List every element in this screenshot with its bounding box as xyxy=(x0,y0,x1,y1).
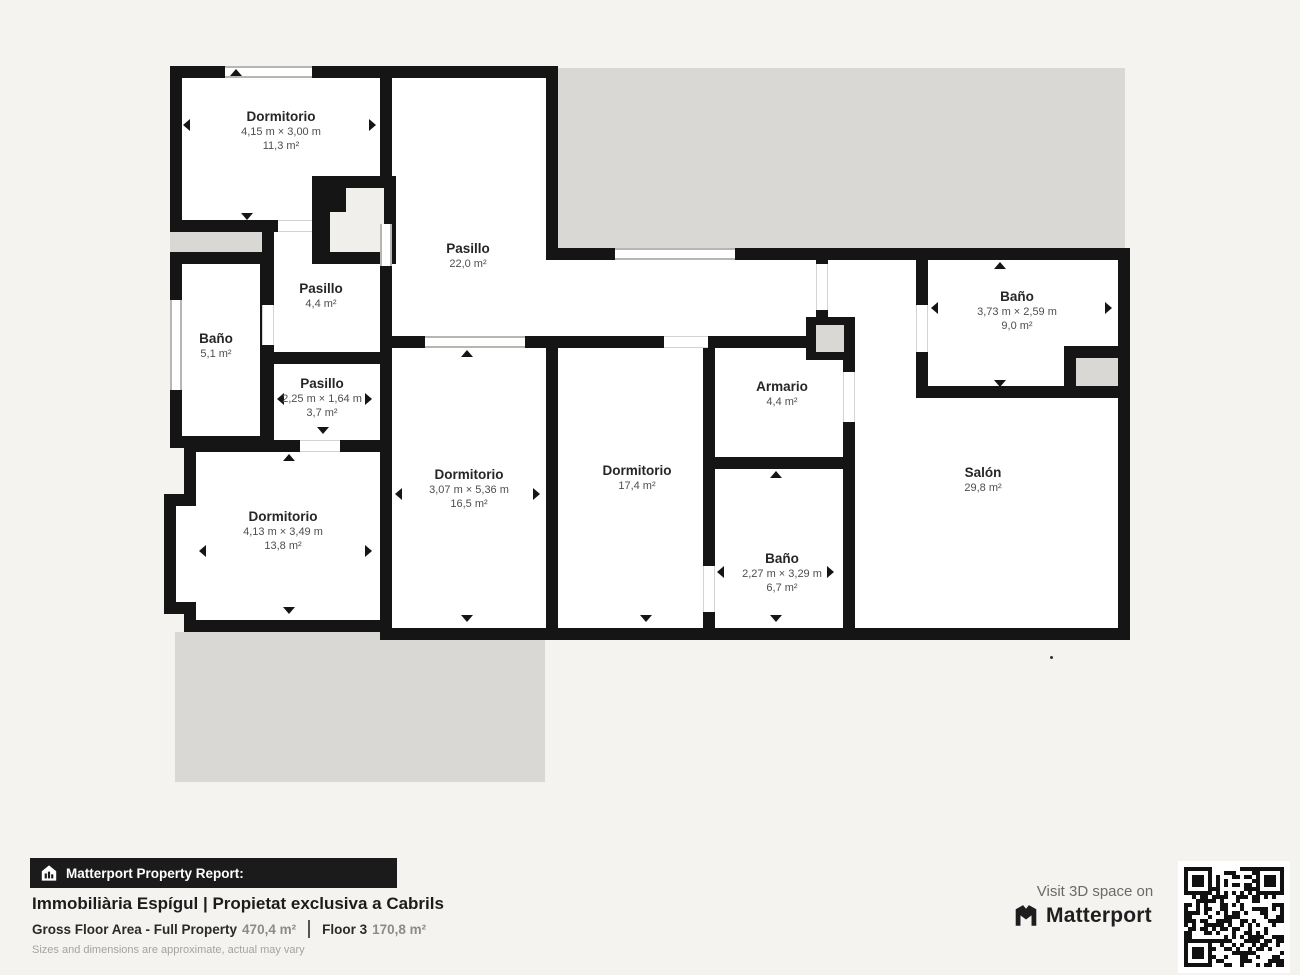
room-label-dormitorio-sw: Dormitorio 4,13 m × 3,49 m 13,8 m² xyxy=(243,508,323,553)
room-label-bano-centro: Baño 2,27 m × 3,29 m 6,7 m² xyxy=(742,550,822,595)
room-label-dormitorio-nw: Dormitorio 4,15 m × 3,00 m 11,3 m² xyxy=(241,108,321,153)
room-label-bano-ne: Baño 3,73 m × 2,59 m 9,0 m² xyxy=(977,288,1057,333)
stairs-landing xyxy=(330,212,384,252)
room-label-bano-oeste: Baño 5,1 m² xyxy=(199,330,233,361)
room-dimensions: 2,27 m × 3,29 m xyxy=(742,567,822,581)
gross-floor-area-value: 470,4 m² xyxy=(242,922,296,937)
gross-floor-area-label: Gross Floor Area - Full Property xyxy=(32,922,237,937)
room-dimensions: 2,25 m × 1,64 m xyxy=(282,392,362,406)
room-name: Dormitorio xyxy=(603,462,672,479)
room-area: 17,4 m² xyxy=(603,479,672,493)
measure-arrow xyxy=(640,615,652,622)
disclaimer: Sizes and dimensions are approximate, ac… xyxy=(32,944,305,956)
measure-arrow xyxy=(317,356,329,363)
room-label-salon: Salón 29,8 m² xyxy=(964,464,1001,495)
measure-arrow xyxy=(183,119,190,131)
property-title: Immobiliària Espígul | Propietat exclusi… xyxy=(32,894,444,914)
measure-arrow xyxy=(994,380,1006,387)
room-area: 6,7 m² xyxy=(742,581,822,595)
room-area: 29,8 m² xyxy=(964,481,1001,495)
room-name: Dormitorio xyxy=(243,508,323,525)
measure-arrow xyxy=(283,454,295,461)
room-pasillo-grande xyxy=(380,66,558,348)
door-opening xyxy=(816,264,828,310)
room-area: 4,4 m² xyxy=(756,395,808,409)
room-name: Baño xyxy=(977,288,1057,305)
measure-arrow xyxy=(533,488,540,500)
room-area: 5,1 m² xyxy=(199,347,233,361)
room-bano-centro xyxy=(703,457,855,640)
measure-arrow xyxy=(369,119,376,131)
room-label-dormitorio-este: Dormitorio 17,4 m² xyxy=(603,462,672,493)
door-opening xyxy=(703,566,715,612)
terrace-area xyxy=(175,632,545,782)
window xyxy=(425,336,525,348)
window xyxy=(615,248,735,260)
measure-arrow xyxy=(827,566,834,578)
room-area: 3,7 m² xyxy=(282,406,362,420)
room-label-armario: Armario 4,4 m² xyxy=(756,378,808,409)
void-area xyxy=(816,325,844,352)
room-dimensions: 4,15 m × 3,00 m xyxy=(241,125,321,139)
measure-arrow xyxy=(230,69,242,76)
floor-value: 170,8 m² xyxy=(372,922,426,937)
measure-arrow xyxy=(199,545,206,557)
measure-arrow xyxy=(994,262,1006,269)
room-area: 9,0 m² xyxy=(977,319,1057,333)
separator xyxy=(308,920,310,938)
room-name: Pasillo xyxy=(282,375,362,392)
room-dimensions: 3,73 m × 2,59 m xyxy=(977,305,1057,319)
room-dimensions: 4,13 m × 3,49 m xyxy=(243,525,323,539)
room-label-pasillo-medio: Pasillo 4,4 m² xyxy=(299,280,343,311)
room-name: Dormitorio xyxy=(241,108,321,125)
floor-area-line: Gross Floor Area - Full Property 470,4 m… xyxy=(32,920,426,938)
measure-arrow xyxy=(461,615,473,622)
door-opening xyxy=(916,305,928,352)
measure-arrow xyxy=(241,213,253,220)
room-name: Pasillo xyxy=(299,280,343,297)
measure-arrow xyxy=(770,615,782,622)
void-area xyxy=(1076,358,1118,386)
room-area: 4,4 m² xyxy=(299,297,343,311)
room-name: Baño xyxy=(199,330,233,347)
measure-arrow xyxy=(317,427,329,434)
camera-dot xyxy=(1050,656,1053,659)
wall xyxy=(828,628,1130,640)
room-dimensions: 3,07 m × 5,36 m xyxy=(429,483,509,497)
qr-code[interactable] xyxy=(1178,861,1290,973)
measure-arrow xyxy=(365,545,372,557)
room-name: Baño xyxy=(742,550,822,567)
floor-label: Floor 3 xyxy=(322,922,367,937)
room-label-pasillo-pequeno: Pasillo 2,25 m × 1,64 m 3,7 m² xyxy=(282,375,362,420)
measure-arrow xyxy=(461,350,473,357)
matterport-m-icon xyxy=(1013,903,1039,929)
house-chart-icon xyxy=(40,864,58,882)
measure-arrow xyxy=(1105,302,1112,314)
room-pasillo-grande xyxy=(546,248,828,348)
window xyxy=(170,300,182,390)
measure-arrow xyxy=(395,488,402,500)
matterport-brand-text: Matterport xyxy=(1046,904,1152,928)
room-pasillo-grande xyxy=(546,260,558,336)
report-label: Matterport Property Report: xyxy=(66,866,244,881)
room-area: 22,0 m² xyxy=(446,257,490,271)
room-name: Armario xyxy=(756,378,808,395)
door-opening xyxy=(278,220,312,232)
measure-arrow xyxy=(717,566,724,578)
room-area: 13,8 m² xyxy=(243,539,323,553)
measure-arrow xyxy=(931,302,938,314)
door-opening xyxy=(262,305,274,345)
door-opening xyxy=(300,440,340,452)
room-label-dormitorio-centro: Dormitorio 3,07 m × 5,36 m 16,5 m² xyxy=(429,466,509,511)
room-name: Dormitorio xyxy=(429,466,509,483)
door-opening xyxy=(843,372,855,422)
measure-arrow xyxy=(770,471,782,478)
room-name: Salón xyxy=(964,464,1001,481)
terrace-area xyxy=(558,68,1125,258)
measure-arrow xyxy=(365,393,372,405)
room-area: 11,3 m² xyxy=(241,139,321,153)
window xyxy=(380,224,392,266)
void-area xyxy=(170,230,262,254)
room-name: Pasillo xyxy=(446,240,490,257)
floor-plan: ESPIGUL REAL ESTATE GROUP xyxy=(0,0,1300,975)
qr-code-image xyxy=(1184,867,1284,967)
report-header-bar: Matterport Property Report: xyxy=(30,858,397,888)
room-label-pasillo-grande: Pasillo 22,0 m² xyxy=(446,240,490,271)
measure-arrow xyxy=(283,607,295,614)
visit-3d-text: Visit 3D space on xyxy=(1035,883,1155,900)
room-area: 16,5 m² xyxy=(429,497,509,511)
room-dormitorio-sw xyxy=(176,506,196,602)
matterport-logo[interactable]: Matterport xyxy=(1013,903,1152,929)
door-opening xyxy=(664,336,708,348)
